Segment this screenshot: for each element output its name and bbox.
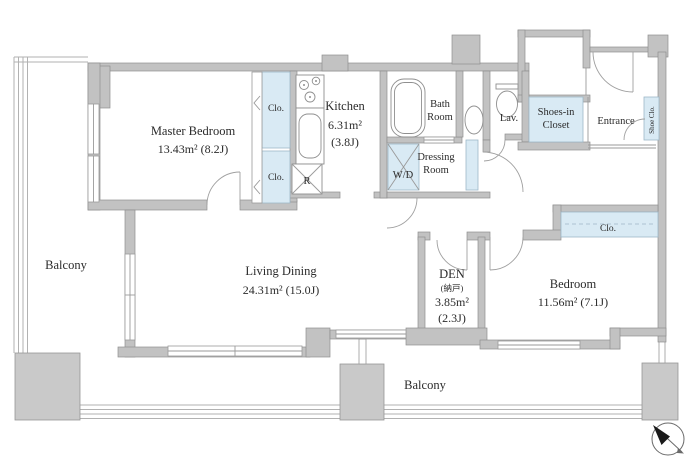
- area-label-den: 3.85m²: [435, 295, 469, 309]
- floor-plan: Master Bedroom 13.43m² (8.2J) Kitchen 6.…: [0, 0, 696, 464]
- room-label-lavatory: Lav.: [500, 113, 518, 124]
- label-shoes-in-closet-2: Closet: [543, 120, 570, 131]
- room-label-bath-2: Room: [427, 112, 453, 123]
- room-label-dressing-2: Room: [423, 165, 449, 176]
- label-shoe-closet: Shoe Clo.: [648, 106, 656, 134]
- room-label-master-bedroom: Master Bedroom: [151, 124, 236, 138]
- label-closet-master-lower: Clo.: [268, 173, 284, 183]
- bathtub-icon: [391, 79, 425, 137]
- area-label-bedroom: 11.56m² (7.1J): [538, 295, 608, 309]
- room-label-entrance: Entrance: [597, 116, 635, 127]
- label-shoes-in-closet-1: Shoes-in: [538, 107, 576, 118]
- label-balcony-bottom: Balcony: [404, 378, 446, 392]
- label-refrigerator: R: [303, 176, 310, 187]
- label-closet-master-upper: Clo.: [268, 104, 284, 114]
- room-label-den: DEN: [439, 267, 465, 281]
- area-label-living-dining: 24.31m² (15.0J): [243, 283, 320, 297]
- floor-plan-canvas: Master Bedroom 13.43m² (8.2J) Kitchen 6.…: [0, 0, 696, 464]
- kanji-label-den: (納戸): [441, 283, 464, 293]
- label-washer-dryer: W/D: [393, 170, 414, 181]
- area-label-kitchen: 6.31m²: [328, 118, 362, 132]
- north-arrow-icon: [652, 423, 684, 455]
- tatami-label-kitchen: (3.8J): [331, 135, 359, 149]
- stove-icon: [296, 75, 324, 108]
- area-label-master-bedroom: 13.43m² (8.2J): [158, 142, 229, 156]
- room-label-dressing-1: Dressing: [417, 152, 455, 163]
- balcony-partition-blocks: [15, 338, 678, 420]
- room-label-kitchen: Kitchen: [325, 99, 365, 113]
- label-balcony-left: Balcony: [45, 258, 87, 272]
- linen-closet: [466, 140, 478, 190]
- washbasin-icon: [465, 106, 483, 134]
- room-label-bedroom: Bedroom: [550, 277, 597, 291]
- tatami-label-den: (2.3J): [438, 311, 466, 325]
- room-label-bath-1: Bath: [430, 99, 451, 110]
- room-label-living-dining: Living Dining: [245, 264, 317, 278]
- kitchen-sink-icon: [296, 108, 324, 164]
- label-closet-bedroom: Clo.: [600, 224, 616, 234]
